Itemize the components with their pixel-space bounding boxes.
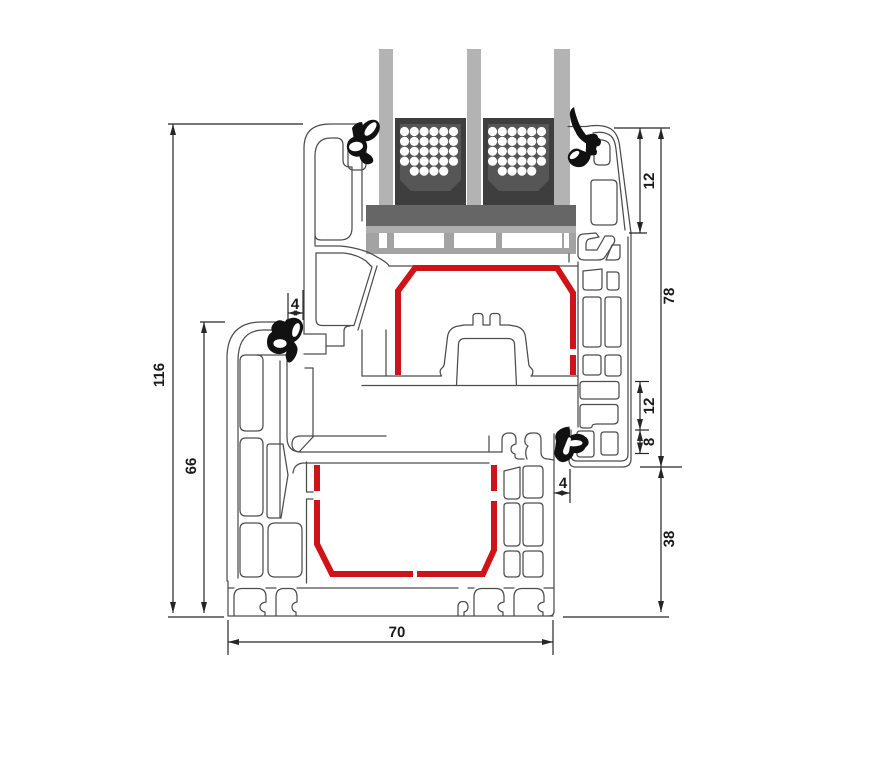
- svg-text:4: 4: [291, 296, 300, 313]
- svg-text:116: 116: [151, 363, 168, 387]
- svg-text:66: 66: [183, 458, 200, 475]
- svg-text:12: 12: [641, 173, 658, 190]
- svg-text:12: 12: [641, 398, 658, 415]
- svg-text:70: 70: [389, 624, 406, 641]
- svg-text:4: 4: [559, 475, 568, 492]
- svg-text:78: 78: [661, 288, 678, 305]
- svg-text:38: 38: [661, 531, 678, 548]
- svg-text:8: 8: [641, 438, 658, 446]
